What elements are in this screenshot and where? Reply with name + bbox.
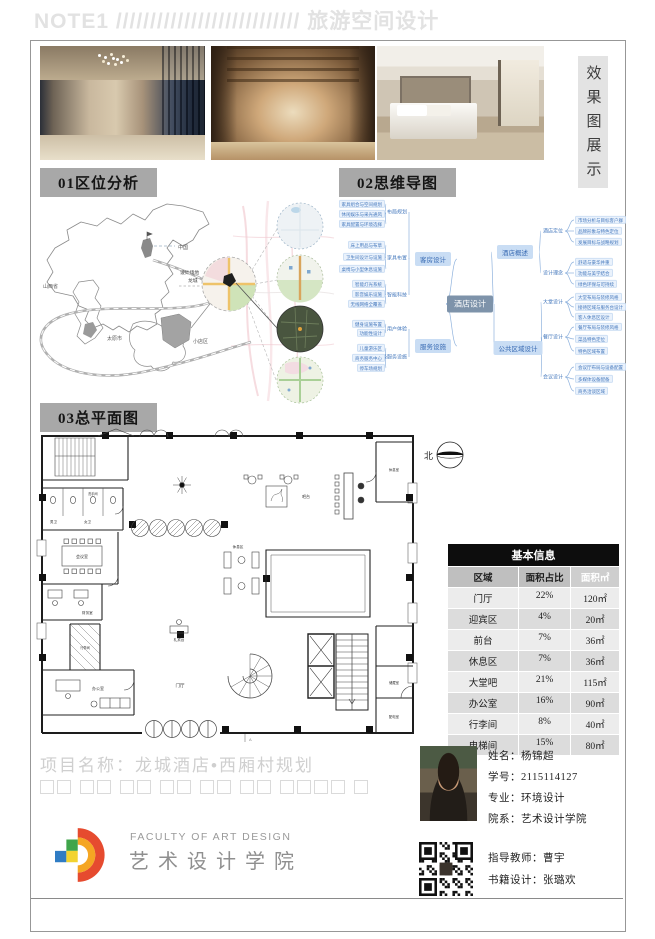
dept-label: 院系： xyxy=(488,814,521,825)
north-label: 北 xyxy=(424,451,433,461)
mindmap-leaf-node: 餐厅布局与装修风格 xyxy=(575,323,622,331)
dept-value: 艺术设计学院 xyxy=(521,814,587,825)
logo-text-cn: 艺术设计学院 xyxy=(129,845,303,874)
table-row: 前台7%36㎡ xyxy=(448,630,619,650)
pillows xyxy=(397,105,427,115)
mindmap-sub-node: 会议设计 xyxy=(543,374,563,381)
mindmap-sub-node: 设计理念 xyxy=(543,270,563,277)
gallery-vertical-label: 效果图展示 xyxy=(578,56,608,188)
wall-slats xyxy=(162,46,205,135)
label-lounge: 休息区 xyxy=(233,544,244,549)
mindmap-branch-node: 客房设计 xyxy=(415,252,451,266)
bedroom-window xyxy=(498,60,539,126)
corridor-floor xyxy=(211,142,375,160)
placeholder-box xyxy=(331,780,345,794)
mindmap-leaf-node: 接待区域与服务台设计 xyxy=(575,303,626,311)
render-photo-bedroom xyxy=(377,46,544,160)
chandelier xyxy=(98,54,101,57)
placeholder-box xyxy=(297,780,311,794)
label-concierge: 礼宾台 xyxy=(174,637,185,642)
info-table: 基本信息 区域面积占比面积㎡门厅22%120㎡迎宾区4%20㎡前台7%36㎡休息… xyxy=(448,544,619,755)
mindmap-leaf-node: 无线网络全覆盖 xyxy=(348,300,386,308)
floorplan: 洗手间 男卫 女卫 会议室 财务室 行李间 办公室 吧台 休息区 礼宾台 门厅 … xyxy=(30,428,470,746)
student-dept-row: 院系：艺术设计学院 xyxy=(488,811,587,826)
inset-circle-3 xyxy=(277,306,323,352)
inset-circle-1 xyxy=(277,203,323,249)
mindmap-branch-node: 酒店概述 xyxy=(497,245,533,259)
name-value: 杨锦超 xyxy=(521,751,554,762)
mindmap-sub-node: 大堂设计 xyxy=(543,299,563,306)
logo-green-square xyxy=(66,840,77,851)
mindmap-branch-node: 服务设施 xyxy=(415,339,451,353)
label-storage: 储藏室 xyxy=(389,680,400,685)
page-header-title: NOTE1 /////////////////////////// 旅游空间设计 xyxy=(34,5,439,35)
mindmap-leaf-node: 家具组合与空间规划 xyxy=(339,200,386,208)
mindmap-sub-node: 智能科技 xyxy=(387,292,407,299)
logo-text-en: FACULTY OF ART DESIGN xyxy=(130,831,291,843)
label-meeting-room: 会议室 xyxy=(76,553,88,559)
mindmap-leaf-node: 家具配置与环境选择 xyxy=(339,220,386,228)
mindmap-leaf-node: 桌椅与小型休息设施 xyxy=(339,265,386,273)
student-photo xyxy=(420,746,477,821)
mindmap-leaf-node: 功能与美学结合 xyxy=(575,269,613,277)
id-value: 2115114127 xyxy=(521,772,578,783)
mindmap-leaf-node: 商务洽谈区域 xyxy=(575,387,608,395)
placeholder-box xyxy=(57,780,71,794)
city-label: 太原市 xyxy=(107,335,122,342)
major-label: 专业： xyxy=(488,793,521,804)
province-label: 山西省 xyxy=(43,283,58,290)
logo-yellow-square xyxy=(66,851,77,862)
placeholder-box xyxy=(177,780,191,794)
faculty-logo-mark xyxy=(54,824,118,886)
district-label: 小店区 xyxy=(193,338,208,345)
mindmap-leaf-node: 客人休息区设计 xyxy=(575,313,613,321)
inset-circle-2 xyxy=(277,255,323,303)
revolving-doors xyxy=(146,721,217,738)
placeholder-box xyxy=(280,780,294,794)
mindmap-leaf-node: 发展目标与战略规划 xyxy=(575,238,622,246)
mindmap-sub-node: 酒店定位 xyxy=(543,228,563,235)
lobby-floor xyxy=(40,135,205,160)
book-design-value: 张璐欢 xyxy=(543,875,576,886)
table-row: 大堂吧21%115㎡ xyxy=(448,672,619,692)
mindmap-leaf-node: 床上用品与布草 xyxy=(348,241,386,249)
mindmap-leaf-node: 影音娱乐设施 xyxy=(352,290,385,298)
render-photo-lobby xyxy=(40,46,205,160)
placeholder-box xyxy=(160,780,174,794)
mindmap-leaf-node: 会议厅布局与设备配置 xyxy=(575,363,626,371)
mindmap-leaf-node: 休闲娱乐与采光通风 xyxy=(339,210,386,218)
placeholder-box xyxy=(314,780,328,794)
site-label-2: 龙城 xyxy=(188,277,198,284)
advisor-row: 指导教师：曹宇 xyxy=(488,850,565,865)
id-label: 学号： xyxy=(488,772,521,783)
mindmap-leaf-node: 菜品特色定位 xyxy=(575,335,608,343)
mindmap-leaf-node: 智能灯光系统 xyxy=(352,280,385,288)
svg-text:A: A xyxy=(249,737,252,742)
mindmap-sub-node: 布局规划 xyxy=(387,209,407,216)
placeholder-box xyxy=(97,780,111,794)
mindmap-leaf-node: 商务服务中心 xyxy=(352,354,385,362)
student-id-row: 学号：2115114127 xyxy=(488,769,578,784)
ceiling-beams xyxy=(227,46,358,82)
label-office: 办公室 xyxy=(92,685,104,691)
major-value: 环境设计 xyxy=(521,793,565,804)
book-design-label: 书籍设计： xyxy=(488,875,543,886)
advisor-label: 指导教师： xyxy=(488,853,543,864)
label-women-wc: 女卫 xyxy=(84,519,91,524)
table-row: 休息区7%36㎡ xyxy=(448,651,619,671)
mindmap-sub-node: 餐厅设计 xyxy=(543,334,563,341)
section-mark: A xyxy=(245,734,252,742)
site-circle-map xyxy=(202,257,256,311)
mindmap-leaf-node: 卫生间设计与设施 xyxy=(343,253,385,261)
placeholder-box xyxy=(200,780,214,794)
placeholder-box xyxy=(120,780,134,794)
render-photo-corridor xyxy=(211,46,375,160)
mindmap: 酒店设计客房设计布局规划家具组合与空间规划休闲娱乐与采光通风家具配置与环境选择家… xyxy=(337,196,625,404)
label-power-room: 配电室 xyxy=(389,714,400,719)
placeholder-box xyxy=(354,780,368,794)
north-arrow-icon: 北 xyxy=(424,442,463,468)
placeholder-box xyxy=(217,780,231,794)
label-lobby: 门厅 xyxy=(176,682,185,689)
page: NOTE1 /////////////////////////// 旅游空间设计… xyxy=(0,0,655,939)
mindmap-leaf-node: 停车场规划 xyxy=(357,364,386,372)
province-marker xyxy=(141,238,153,258)
label-men-wc: 男卫 xyxy=(50,519,57,524)
book-design-row: 书籍设计：张璐欢 xyxy=(488,872,576,887)
country-label: 中国 xyxy=(178,244,188,251)
label-finance-room: 财务室 xyxy=(82,610,93,615)
divider-line xyxy=(31,898,623,899)
mindmap-sub-node: 用户体验 xyxy=(387,326,407,333)
mindmap-leaf-node: 功能性设计 xyxy=(357,329,386,337)
label-bar: 吧台 xyxy=(302,493,310,499)
mindmap-leaf-node: 绿色环保与可持续 xyxy=(575,280,617,288)
inset-fan-lines xyxy=(247,226,279,380)
advisor-value: 曹宇 xyxy=(543,853,565,864)
section-title-mindmap: 02思维导图 xyxy=(339,168,456,197)
project-title: 项目名称：龙城酒店•西厢村规划 xyxy=(40,751,314,776)
label-luggage-room: 行李间 xyxy=(80,645,90,650)
section-title-location: 01区位分析 xyxy=(40,168,157,197)
window-bays xyxy=(37,483,417,683)
table-header-row: 区域面积占比面积㎡ xyxy=(448,567,619,587)
mindmap-branch-node: 公共区域设计 xyxy=(494,341,543,355)
logo-blue-square xyxy=(55,851,66,862)
placeholder-box xyxy=(137,780,151,794)
mindmap-sub-node: 家具布置 xyxy=(387,255,407,262)
mindmap-leaf-node: 多媒体设备配备 xyxy=(575,375,613,383)
placeholder-box xyxy=(40,780,54,794)
qr-code xyxy=(419,842,473,896)
site-label-1: 设计场地 xyxy=(180,269,199,276)
mindmap-leaf-node: 市场分析与目标客户群 xyxy=(575,216,626,224)
table-row: 迎宾区4%20㎡ xyxy=(448,609,619,629)
colonnade-columns xyxy=(132,520,221,537)
mindmap-leaf-node: 大堂布局与装修风格 xyxy=(575,293,622,301)
placeholder-box xyxy=(80,780,94,794)
placeholder-boxes xyxy=(40,780,368,794)
shanxi-highlight xyxy=(83,322,97,338)
label-wc: 洗手间 xyxy=(88,491,98,496)
table-row: 门厅22%120㎡ xyxy=(448,588,619,608)
mindmap-leaf-node: 健身设施布置 xyxy=(352,320,385,328)
mindmap-leaf-node: 舒适与豪华并重 xyxy=(575,258,613,266)
mindmap-leaf-node: 特色区域布置 xyxy=(575,347,608,355)
name-label: 姓名： xyxy=(488,751,521,762)
sunken-lounge xyxy=(271,555,365,612)
student-name-row: 姓名：杨锦超 xyxy=(488,748,554,763)
stair-right-treads xyxy=(336,634,368,710)
mindmap-leaf-node: 品牌形象与特色定位 xyxy=(575,227,622,235)
info-table-title: 基本信息 xyxy=(448,544,619,566)
plan-details xyxy=(48,429,413,708)
xiaodian-district xyxy=(161,314,191,348)
location-map: 中国 山西省 太原市 小店区 设计场地 龙城 xyxy=(33,196,335,404)
inset-circle-4 xyxy=(277,357,323,403)
student-major-row: 专业：环境设计 xyxy=(488,790,565,805)
table-row: 行李间8%40㎡ xyxy=(448,714,619,734)
info-table-body: 区域面积占比面积㎡门厅22%120㎡迎宾区4%20㎡前台7%36㎡休息区7%36… xyxy=(448,567,619,755)
label-rest-room: 休息室 xyxy=(389,467,400,472)
table-row: 办公室16%90㎡ xyxy=(448,693,619,713)
mindmap-leaf-node: 儿童游乐区 xyxy=(357,344,386,352)
placeholder-box xyxy=(257,780,271,794)
spiral-stair xyxy=(228,654,272,698)
mindmap-center-node: 酒店设计 xyxy=(447,296,493,313)
placeholder-box xyxy=(240,780,254,794)
elevator-core xyxy=(308,634,368,710)
